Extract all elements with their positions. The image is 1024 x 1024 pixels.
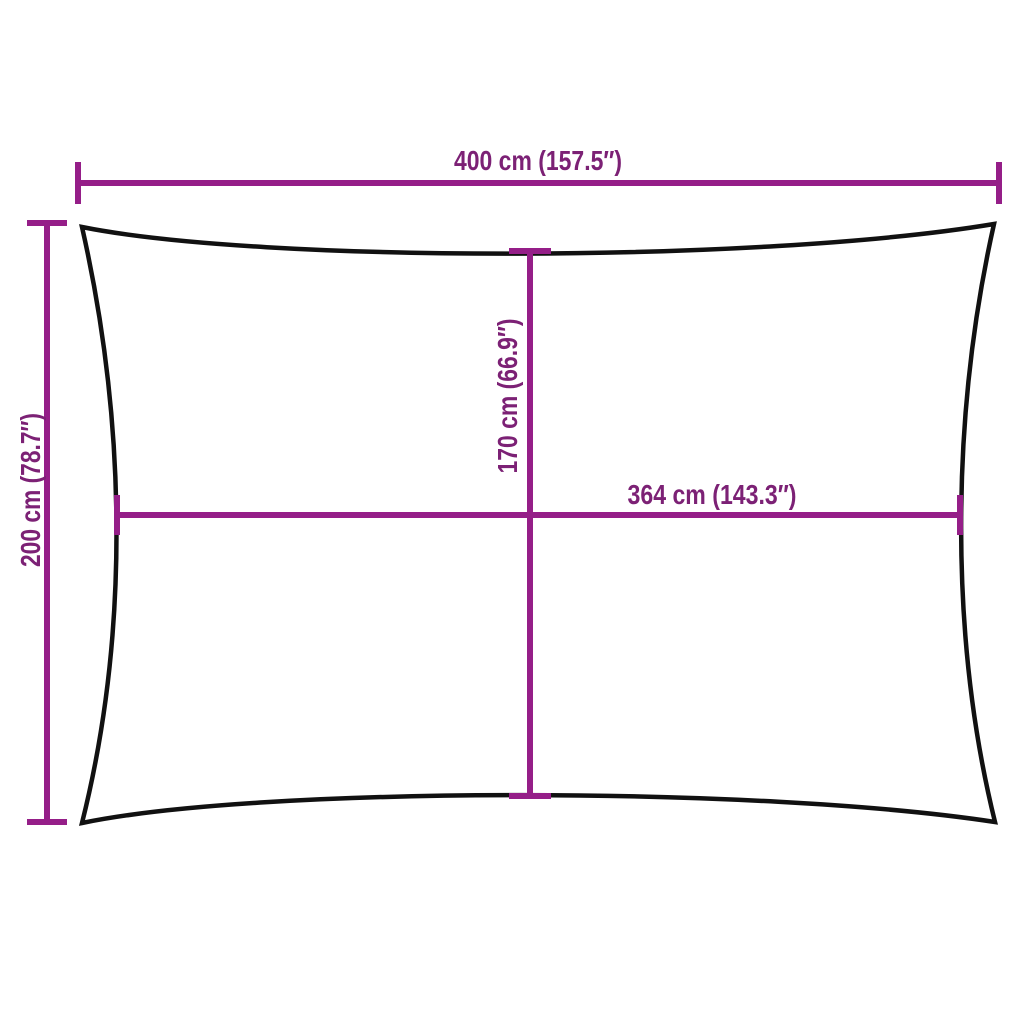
diagram-svg: 400 cm (157.5″) 200 cm (78.7″) 170 cm (6…: [0, 0, 1024, 1024]
center-height-label: 170 cm (66.9″): [492, 319, 523, 474]
center-height-dimension: 170 cm (66.9″): [492, 251, 551, 796]
top-width-label: 400 cm (157.5″): [454, 145, 622, 176]
center-width-label: 364 cm (143.3″): [628, 479, 797, 510]
product-dimension-diagram: 400 cm (157.5″) 200 cm (78.7″) 170 cm (6…: [0, 0, 1024, 1024]
top-width-dimension: 400 cm (157.5″): [78, 145, 999, 204]
left-height-dimension: 200 cm (78.7″): [15, 223, 67, 822]
shade-sail-outline: [82, 224, 995, 823]
center-width-dimension: 364 cm (143.3″): [117, 479, 960, 535]
left-height-label: 200 cm (78.7″): [15, 413, 46, 567]
